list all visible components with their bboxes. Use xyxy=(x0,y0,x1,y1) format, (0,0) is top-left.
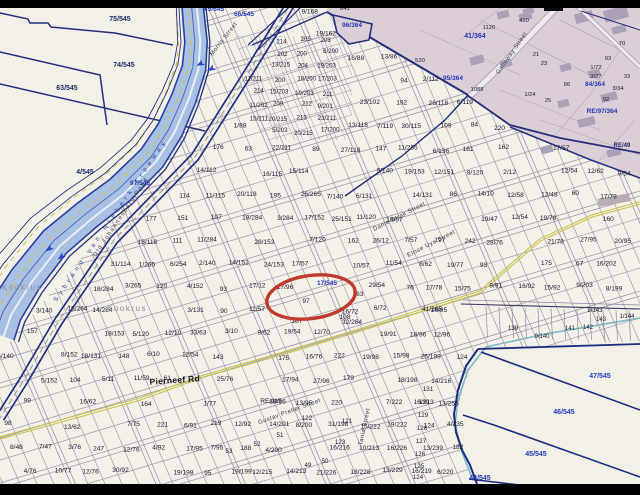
svg-text:1/88: 1/88 xyxy=(234,123,247,130)
svg-text:19/198: 19/198 xyxy=(173,469,194,476)
svg-text:128: 128 xyxy=(417,425,428,432)
svg-text:51: 51 xyxy=(277,432,284,439)
svg-text:11/57: 11/57 xyxy=(249,306,265,313)
svg-text:18/198: 18/198 xyxy=(397,377,418,384)
svg-text:214: 214 xyxy=(254,88,265,95)
svg-text:11/265: 11/265 xyxy=(398,144,418,151)
svg-text:12/10: 12/10 xyxy=(165,330,182,337)
svg-text:209: 209 xyxy=(273,100,284,107)
svg-text:19/47: 19/47 xyxy=(481,216,498,223)
svg-text:10/203: 10/203 xyxy=(295,90,314,97)
svg-text:162: 162 xyxy=(348,238,359,245)
svg-text:19/222: 19/222 xyxy=(387,422,408,429)
svg-text:161: 161 xyxy=(463,146,474,153)
svg-text:18/96: 18/96 xyxy=(410,332,427,339)
svg-text:5/120: 5/120 xyxy=(132,331,149,338)
svg-text:45/545: 45/545 xyxy=(525,451,547,458)
svg-text:93: 93 xyxy=(480,262,488,269)
svg-text:19/77: 19/77 xyxy=(447,262,464,269)
svg-text:211: 211 xyxy=(323,91,333,98)
svg-text:17/94: 17/94 xyxy=(282,377,299,384)
svg-text:147: 147 xyxy=(375,146,386,153)
svg-text:84: 84 xyxy=(471,122,479,129)
svg-text:3/284: 3/284 xyxy=(277,215,294,222)
svg-text:23/211: 23/211 xyxy=(318,115,337,122)
svg-text:7/57: 7/57 xyxy=(404,237,417,244)
svg-text:12/76: 12/76 xyxy=(82,468,99,475)
svg-text:13/118: 13/118 xyxy=(348,122,368,129)
svg-text:17/203: 17/203 xyxy=(318,76,337,83)
svg-text:11/59: 11/59 xyxy=(134,375,150,382)
svg-text:20/215: 20/215 xyxy=(294,130,313,137)
svg-text:4/152: 4/152 xyxy=(187,283,204,290)
svg-text:6/254: 6/254 xyxy=(170,261,187,268)
svg-text:109: 109 xyxy=(440,122,451,129)
svg-text:192: 192 xyxy=(396,99,407,106)
svg-text:25/151: 25/151 xyxy=(332,216,353,223)
svg-text:6/131: 6/131 xyxy=(356,193,373,200)
svg-text:13/229: 13/229 xyxy=(383,467,404,474)
svg-text:175: 175 xyxy=(541,260,552,267)
svg-text:143: 143 xyxy=(596,317,607,323)
svg-text:3/140: 3/140 xyxy=(36,308,53,315)
svg-text:90: 90 xyxy=(220,308,228,315)
svg-text:RE/97/364: RE/97/364 xyxy=(587,108,618,115)
svg-text:15/98: 15/98 xyxy=(393,353,410,360)
svg-text:9/91: 9/91 xyxy=(489,283,502,290)
svg-text:12/76: 12/76 xyxy=(123,447,140,454)
svg-text:14/152: 14/152 xyxy=(229,260,250,267)
svg-text:25/199: 25/199 xyxy=(421,354,442,361)
svg-text:176: 176 xyxy=(213,144,224,151)
svg-text:18/153: 18/153 xyxy=(104,330,125,337)
svg-text:23/102: 23/102 xyxy=(360,99,381,106)
svg-text:123: 123 xyxy=(335,439,346,446)
svg-text:222: 222 xyxy=(334,353,345,360)
svg-text:3/34: 3/34 xyxy=(612,86,624,92)
svg-text:5/152: 5/152 xyxy=(41,377,58,384)
svg-text:12/48: 12/48 xyxy=(541,191,558,198)
svg-text:12/54: 12/54 xyxy=(511,214,528,221)
svg-text:4/76: 4/76 xyxy=(24,468,37,475)
svg-text:50: 50 xyxy=(322,458,329,465)
svg-text:204: 204 xyxy=(298,62,309,69)
svg-text:66/545: 66/545 xyxy=(234,11,254,18)
svg-text:6/72: 6/72 xyxy=(374,305,387,312)
svg-text:20/95: 20/95 xyxy=(615,238,632,245)
svg-text:12/151: 12/151 xyxy=(434,169,455,176)
svg-text:49: 49 xyxy=(305,462,312,469)
svg-text:143: 143 xyxy=(212,354,223,361)
svg-text:3/76: 3/76 xyxy=(68,444,81,451)
svg-text:15/211: 15/211 xyxy=(250,116,269,123)
svg-text:74/545: 74/545 xyxy=(113,62,135,69)
svg-text:15/203: 15/203 xyxy=(270,88,289,95)
svg-text:14/10: 14/10 xyxy=(477,190,494,197)
svg-text:9/140: 9/140 xyxy=(376,168,393,175)
svg-text:3/27: 3/27 xyxy=(590,74,601,80)
svg-text:219: 219 xyxy=(210,420,221,427)
svg-text:9/168: 9/168 xyxy=(301,9,318,16)
svg-text:6/136: 6/136 xyxy=(433,148,450,155)
svg-text:99: 99 xyxy=(24,398,32,405)
svg-text:8/120: 8/120 xyxy=(467,170,484,177)
svg-text:11/202: 11/202 xyxy=(249,102,268,109)
svg-text:31/114: 31/114 xyxy=(111,261,131,268)
svg-text:92: 92 xyxy=(603,97,609,103)
svg-text:4/235: 4/235 xyxy=(447,421,464,428)
svg-text:13/215: 13/215 xyxy=(271,62,290,69)
svg-text:142: 142 xyxy=(583,325,594,331)
svg-text:47/545: 47/545 xyxy=(589,373,611,380)
svg-text:86: 86 xyxy=(564,82,570,88)
svg-text:12/62: 12/62 xyxy=(587,168,604,175)
svg-text:12/54: 12/54 xyxy=(561,167,578,174)
svg-text:107: 107 xyxy=(211,214,222,221)
svg-text:220: 220 xyxy=(331,399,342,406)
svg-text:530: 530 xyxy=(415,58,425,64)
svg-text:27/118: 27/118 xyxy=(341,147,361,154)
svg-text:410: 410 xyxy=(519,18,529,24)
svg-text:104: 104 xyxy=(70,377,81,384)
svg-text:17/78: 17/78 xyxy=(426,285,443,292)
svg-text:28/76: 28/76 xyxy=(486,240,503,247)
svg-text:27/96: 27/96 xyxy=(313,378,330,385)
svg-text:111: 111 xyxy=(172,237,182,244)
svg-text:30/115: 30/115 xyxy=(401,123,421,130)
svg-text:53: 53 xyxy=(226,448,233,455)
svg-text:1/72: 1/72 xyxy=(590,65,601,71)
svg-text:6/119: 6/119 xyxy=(457,99,473,106)
svg-text:Kookrus: Kookrus xyxy=(107,304,147,313)
svg-text:2/140: 2/140 xyxy=(199,260,216,267)
svg-text:95/364: 95/364 xyxy=(443,75,463,82)
svg-text:86: 86 xyxy=(450,191,458,198)
svg-text:25/76: 25/76 xyxy=(217,376,234,383)
svg-text:164: 164 xyxy=(141,401,152,408)
svg-text:Kookrus: Kookrus xyxy=(2,283,42,292)
svg-text:18/284: 18/284 xyxy=(242,215,263,222)
svg-text:75/545: 75/545 xyxy=(109,16,131,23)
svg-text:120: 120 xyxy=(156,283,167,290)
svg-text:30/92: 30/92 xyxy=(112,467,129,474)
svg-text:10/77: 10/77 xyxy=(55,467,72,474)
svg-text:19/98: 19/98 xyxy=(362,354,379,361)
svg-text:16/226: 16/226 xyxy=(387,445,408,452)
svg-text:203: 203 xyxy=(321,37,332,44)
svg-text:13/255: 13/255 xyxy=(439,400,460,407)
svg-text:46/545: 46/545 xyxy=(553,409,575,416)
svg-text:2/112: 2/112 xyxy=(423,76,439,83)
svg-text:16/76: 16/76 xyxy=(306,354,323,361)
svg-text:148: 148 xyxy=(118,353,129,360)
svg-text:26/265: 26/265 xyxy=(301,191,322,198)
svg-text:13/62: 13/62 xyxy=(64,424,81,431)
svg-text:95: 95 xyxy=(204,470,212,477)
svg-text:12/58: 12/58 xyxy=(507,192,524,199)
svg-text:14/201: 14/201 xyxy=(269,421,290,428)
svg-text:67: 67 xyxy=(576,261,584,268)
svg-text:18/228: 18/228 xyxy=(350,469,371,476)
svg-text:52: 52 xyxy=(254,441,261,448)
svg-text:6/200: 6/200 xyxy=(323,48,339,55)
svg-text:17/200: 17/200 xyxy=(321,127,340,134)
svg-text:12/92: 12/92 xyxy=(235,421,252,428)
svg-text:20/118: 20/118 xyxy=(237,191,257,198)
svg-text:17/12: 17/12 xyxy=(249,282,266,289)
svg-text:122: 122 xyxy=(302,415,313,422)
svg-text:15/264: 15/264 xyxy=(67,306,88,313)
svg-text:212: 212 xyxy=(302,101,313,108)
svg-text:11/211: 11/211 xyxy=(245,75,263,82)
svg-text:162: 162 xyxy=(498,144,509,151)
svg-text:3/131: 3/131 xyxy=(187,307,204,314)
svg-text:89: 89 xyxy=(312,146,320,153)
svg-text:15/114: 15/114 xyxy=(289,168,309,175)
svg-text:220: 220 xyxy=(494,125,505,132)
svg-text:1/24: 1/24 xyxy=(524,92,536,98)
svg-text:182: 182 xyxy=(452,444,463,451)
svg-text:97: 97 xyxy=(302,298,310,305)
svg-text:7/47: 7/47 xyxy=(39,443,52,450)
svg-text:13/86: 13/86 xyxy=(381,54,398,61)
svg-text:5/203: 5/203 xyxy=(272,127,288,134)
svg-text:7/75: 7/75 xyxy=(127,421,140,428)
svg-text:8/199: 8/199 xyxy=(606,286,623,293)
svg-text:8/48: 8/48 xyxy=(10,444,23,451)
svg-text:28/153: 28/153 xyxy=(254,239,275,246)
svg-text:6/220: 6/220 xyxy=(437,469,454,476)
svg-text:18/284: 18/284 xyxy=(93,286,114,293)
svg-text:242: 242 xyxy=(465,238,476,245)
svg-text:202: 202 xyxy=(277,51,288,58)
svg-text:2/12: 2/12 xyxy=(503,169,516,176)
svg-text:114: 114 xyxy=(179,193,190,200)
svg-text:16/202: 16/202 xyxy=(596,260,617,267)
svg-text:177: 177 xyxy=(146,216,157,223)
svg-text:33/63: 33/63 xyxy=(190,330,207,337)
svg-text:16/62: 16/62 xyxy=(80,399,97,406)
svg-text:205: 205 xyxy=(301,36,312,43)
svg-text:160: 160 xyxy=(603,216,614,223)
svg-text:200: 200 xyxy=(297,51,308,58)
svg-text:7/120: 7/120 xyxy=(309,236,326,243)
svg-text:32/264: 32/264 xyxy=(342,319,363,326)
svg-text:94: 94 xyxy=(400,77,408,84)
svg-text:10/57: 10/57 xyxy=(353,263,370,270)
svg-text:17/95: 17/95 xyxy=(186,445,203,452)
svg-text:28/118: 28/118 xyxy=(429,100,449,107)
svg-text:16/115: 16/115 xyxy=(262,171,282,178)
svg-text:9/201: 9/201 xyxy=(318,103,334,110)
svg-text:1088: 1088 xyxy=(471,87,484,93)
svg-text:21/226: 21/226 xyxy=(316,470,337,477)
svg-text:14/216: 14/216 xyxy=(431,378,452,385)
svg-text:63/545: 63/545 xyxy=(56,85,78,92)
svg-text:7/222: 7/222 xyxy=(386,399,403,406)
svg-text:9/203: 9/203 xyxy=(576,282,593,289)
svg-text:25: 25 xyxy=(545,98,551,104)
svg-text:139: 139 xyxy=(508,326,519,332)
svg-text:7/95: 7/95 xyxy=(210,444,223,451)
svg-text:93: 93 xyxy=(605,56,611,62)
svg-text:19/153: 19/153 xyxy=(405,169,426,176)
svg-text:4/200: 4/200 xyxy=(265,447,282,454)
svg-text:8/143: 8/143 xyxy=(587,308,603,314)
svg-text:121: 121 xyxy=(342,418,353,425)
svg-text:247: 247 xyxy=(93,446,104,453)
svg-text:9/140: 9/140 xyxy=(534,334,550,340)
svg-text:188: 188 xyxy=(240,445,251,452)
svg-text:15/92: 15/92 xyxy=(544,284,561,291)
svg-text:63: 63 xyxy=(245,146,253,153)
svg-text:124: 124 xyxy=(456,354,467,361)
svg-text:22/111: 22/111 xyxy=(272,144,292,151)
svg-text:19/199: 19/199 xyxy=(232,469,253,476)
svg-text:19/54: 19/54 xyxy=(284,329,301,336)
svg-text:1/265: 1/265 xyxy=(139,262,156,269)
svg-text:11/284: 11/284 xyxy=(197,236,217,243)
svg-text:151: 151 xyxy=(177,215,188,222)
svg-text:98: 98 xyxy=(4,420,12,427)
svg-text:12/215: 12/215 xyxy=(252,469,273,476)
svg-text:14/131: 14/131 xyxy=(412,192,433,199)
svg-text:179: 179 xyxy=(343,375,354,382)
svg-text:23: 23 xyxy=(541,61,547,67)
svg-text:12/54: 12/54 xyxy=(182,352,199,359)
svg-text:RE/115: RE/115 xyxy=(260,398,282,405)
svg-text:1120: 1120 xyxy=(483,25,495,31)
svg-text:44/545: 44/545 xyxy=(469,475,491,482)
svg-text:RE/49: RE/49 xyxy=(614,143,631,149)
svg-text:126: 126 xyxy=(415,451,426,458)
svg-text:125: 125 xyxy=(414,463,425,470)
svg-text:17/57: 17/57 xyxy=(553,145,570,152)
svg-text:195: 195 xyxy=(270,192,281,199)
svg-text:27/95: 27/95 xyxy=(580,237,597,244)
svg-text:12/70: 12/70 xyxy=(313,329,330,336)
svg-text:1/144: 1/144 xyxy=(619,314,635,320)
svg-text:6/91: 6/91 xyxy=(184,423,197,430)
svg-text:18/131: 18/131 xyxy=(81,353,102,360)
svg-text:19/78: 19/78 xyxy=(540,215,557,222)
svg-text:21/78: 21/78 xyxy=(547,238,564,245)
svg-text:18/200: 18/200 xyxy=(297,75,316,82)
svg-text:17/57: 17/57 xyxy=(292,261,309,268)
svg-text:76: 76 xyxy=(407,284,415,291)
svg-text:96/364: 96/364 xyxy=(342,22,362,29)
svg-text:41/265: 41/265 xyxy=(422,306,443,313)
svg-text:11/54: 11/54 xyxy=(386,260,402,267)
svg-text:3/10: 3/10 xyxy=(225,328,238,335)
svg-text:16/88: 16/88 xyxy=(348,55,365,62)
svg-text:21: 21 xyxy=(533,52,539,58)
svg-text:8/152: 8/152 xyxy=(61,352,78,359)
svg-text:12/96: 12/96 xyxy=(434,331,451,338)
svg-text:214: 214 xyxy=(276,39,287,46)
svg-text:5/140: 5/140 xyxy=(0,353,14,360)
svg-text:17/152: 17/152 xyxy=(304,215,325,222)
svg-text:5/11: 5/11 xyxy=(102,376,115,383)
svg-text:18/118: 18/118 xyxy=(138,239,158,246)
svg-text:60: 60 xyxy=(572,190,580,197)
svg-text:7/140: 7/140 xyxy=(327,193,344,200)
svg-text:14/112: 14/112 xyxy=(197,167,217,174)
svg-text:131: 131 xyxy=(423,386,434,393)
svg-text:3/265: 3/265 xyxy=(125,283,142,290)
svg-text:9/62: 9/62 xyxy=(257,329,270,336)
svg-text:6/10: 6/10 xyxy=(147,351,160,358)
svg-text:8/200: 8/200 xyxy=(296,422,313,429)
svg-text:19/203: 19/203 xyxy=(317,62,336,69)
svg-text:17/78: 17/78 xyxy=(600,193,617,200)
svg-text:175: 175 xyxy=(278,355,289,362)
svg-text:7/119: 7/119 xyxy=(377,123,393,130)
svg-text:93: 93 xyxy=(220,286,228,293)
svg-text:141: 141 xyxy=(565,326,576,332)
svg-text:213: 213 xyxy=(297,115,308,122)
svg-text:41/364: 41/364 xyxy=(464,33,486,40)
svg-text:26/12: 26/12 xyxy=(372,237,389,244)
svg-text:4/92: 4/92 xyxy=(152,445,165,452)
svg-text:29/54: 29/54 xyxy=(369,282,386,289)
svg-text:157: 157 xyxy=(27,328,38,335)
svg-text:221: 221 xyxy=(157,422,168,429)
svg-text:70: 70 xyxy=(619,41,625,47)
svg-text:20/215: 20/215 xyxy=(268,116,287,123)
svg-text:8/62: 8/62 xyxy=(419,261,432,268)
svg-text:1/77: 1/77 xyxy=(203,401,216,408)
svg-text:9/54: 9/54 xyxy=(618,170,631,177)
svg-text:129: 129 xyxy=(418,412,429,419)
svg-text:124: 124 xyxy=(413,474,424,481)
svg-text:130: 130 xyxy=(419,399,430,406)
svg-text:15/75: 15/75 xyxy=(454,285,471,292)
svg-text:200: 200 xyxy=(275,77,286,84)
svg-text:127: 127 xyxy=(416,438,427,445)
svg-text:19/91: 19/91 xyxy=(380,331,397,338)
svg-text:17/545: 17/545 xyxy=(317,280,337,287)
svg-text:11/115: 11/115 xyxy=(206,192,226,199)
svg-text:16/92: 16/92 xyxy=(518,283,535,290)
svg-text:33: 33 xyxy=(624,74,630,80)
svg-text:24/153: 24/153 xyxy=(264,261,285,268)
svg-text:84/364: 84/364 xyxy=(585,81,605,88)
svg-text:13/239: 13/239 xyxy=(423,445,444,452)
svg-text:4/545: 4/545 xyxy=(76,169,94,176)
svg-text:11/120: 11/120 xyxy=(356,214,376,221)
